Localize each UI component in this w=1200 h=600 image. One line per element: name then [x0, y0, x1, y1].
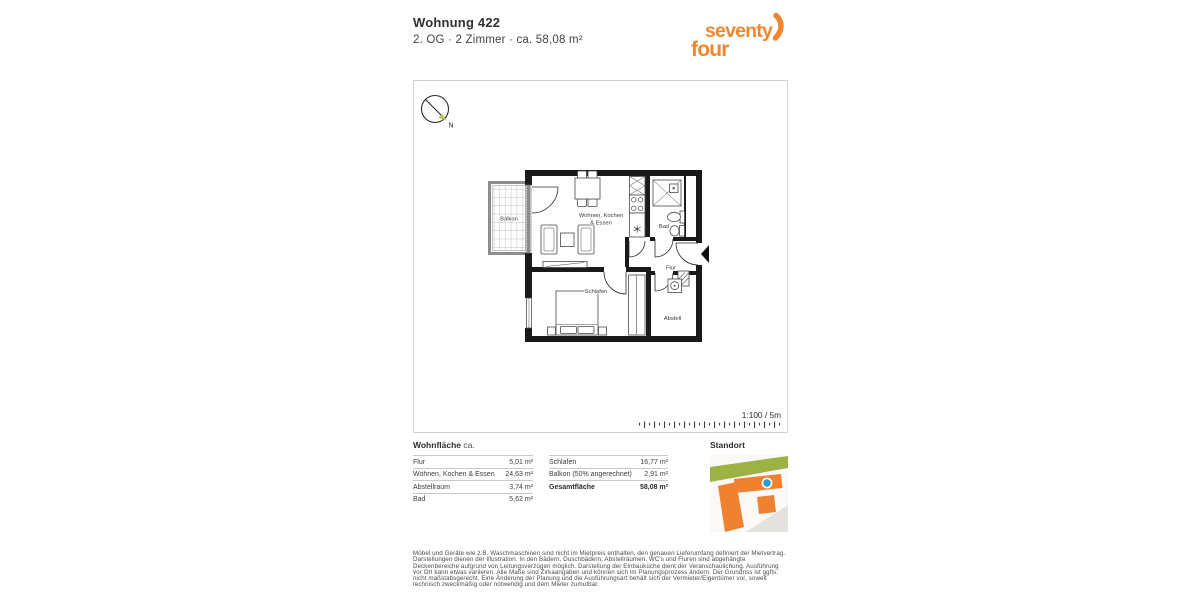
furniture [541, 171, 685, 335]
room-label-bath: Bad [659, 224, 669, 230]
page-subtitle: 2. OG · 2 Zimmer · ca. 58,08 m² [413, 34, 713, 46]
room-label-storage: Abstell [664, 316, 681, 322]
logo-swoosh-icon [776, 16, 782, 39]
area-label: Schlafen [549, 459, 576, 467]
page-title: Wohnung 422 [413, 15, 713, 30]
room-label-hall: Flur [666, 266, 676, 272]
area-value: 2,91 m² [644, 471, 668, 479]
area-label-total: Gesamtfläche [549, 484, 595, 492]
compass-north-icon: N [422, 96, 454, 130]
table-row: Schlafen 16,77 m² [549, 455, 668, 468]
area-value: 24,63 m² [505, 471, 533, 479]
area-value: 16,77 m² [640, 459, 668, 467]
areas-column-left: Flur 5,01 m² Wohnen, Kochen & Essen 24,6… [413, 455, 533, 505]
area-label: Balkon (50% angerechnet) [549, 471, 632, 479]
room-label-balcony: Balkon [500, 217, 518, 223]
area-label: Flur [413, 459, 425, 467]
scale-label: 1:100 / 5m [742, 410, 781, 420]
seventyfour-logo-icon: seventy four [690, 12, 788, 59]
floorplan-panel: N [413, 80, 788, 433]
area-label: Bad [413, 496, 425, 504]
areas-column-right: Schlafen 16,77 m² Balkon (50% angerechne… [549, 455, 668, 493]
table-row-total: Gesamtfläche 58,08 m² [549, 480, 668, 493]
compass-n-label: N [449, 123, 454, 130]
area-label: Abstellraum [413, 484, 450, 492]
location-map-icon [710, 455, 788, 532]
table-row: Wohnen, Kochen & Essen 24,63 m² [413, 468, 533, 481]
areas-heading-title: Wohnfläche [413, 440, 461, 450]
header: Wohnung 422 2. OG · 2 Zimmer · ca. 58,08… [413, 15, 713, 46]
table-row: Balkon (50% angerechnet) 2,91 m² [549, 468, 668, 481]
seventyfour-logo: seventy four [690, 12, 788, 59]
room-label-living-1: Wohnen, Kochen [579, 213, 623, 219]
area-value: 5,62 m² [509, 496, 533, 504]
entrance-arrow-icon [701, 245, 709, 263]
disclaimer-text: Möbel und Geräte wie z.B. Waschmaschinen… [413, 551, 788, 589]
room-label-bedroom: Schlafen [585, 289, 608, 295]
area-value-total: 58,08 m² [640, 484, 668, 492]
floorplan-drawing: N [414, 81, 787, 432]
location-marker-icon [762, 478, 771, 487]
areas-heading-suffix: ca. [463, 440, 474, 450]
logo-word-four: four [691, 38, 729, 59]
area-label: Wohnen, Kochen & Essen [413, 471, 495, 479]
table-row: Flur 5,01 m² [413, 455, 533, 468]
area-value: 3,74 m² [509, 484, 533, 492]
room-label-living-2: & Essen [590, 221, 612, 227]
scale-ruler-icon [637, 422, 782, 429]
area-value: 5,01 m² [509, 459, 533, 467]
location-map [710, 455, 788, 532]
table-row: Bad 5,62 m² [413, 493, 533, 506]
table-row: Abstellraum 3,74 m² [413, 480, 533, 493]
standort-heading: Standort [710, 440, 745, 450]
